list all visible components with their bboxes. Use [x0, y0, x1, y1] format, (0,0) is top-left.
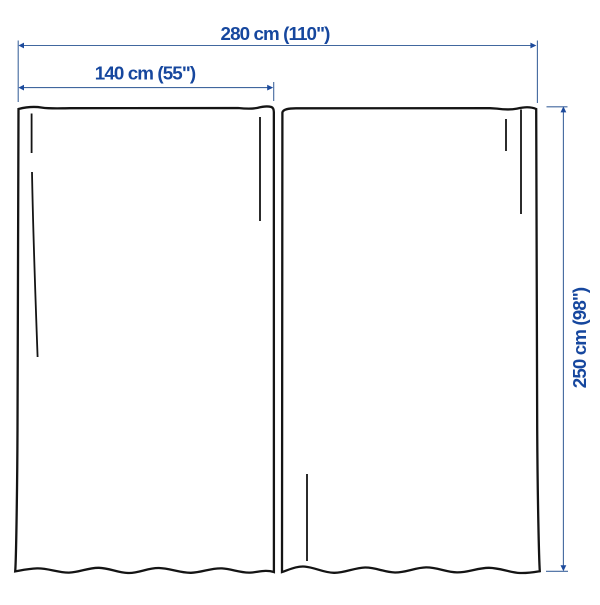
svg-text:140 cm (55"): 140 cm (55"): [95, 62, 196, 83]
svg-text:280 cm (110"): 280 cm (110"): [221, 23, 331, 44]
svg-text:250 cm (98"): 250 cm (98"): [569, 287, 590, 388]
